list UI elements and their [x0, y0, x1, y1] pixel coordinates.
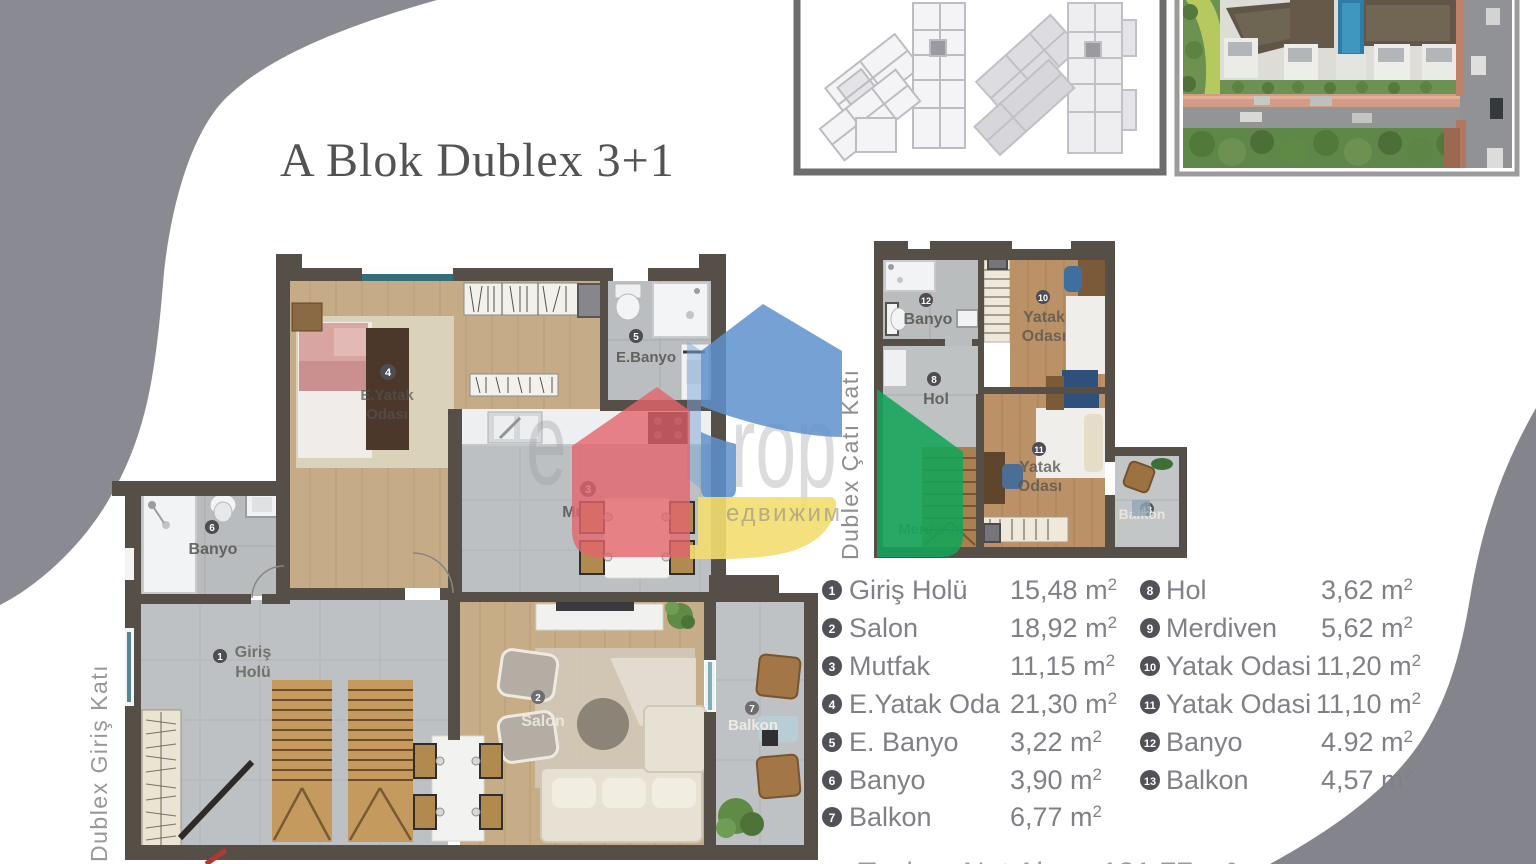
svg-text:4,57 m2: 4,57 m2: [1321, 765, 1413, 795]
svg-text:5: 5: [633, 332, 639, 343]
svg-text:4: 4: [829, 698, 836, 712]
svg-text:Dublex Giriş Katı: Dublex Giriş Katı: [86, 664, 112, 862]
svg-text:13: 13: [1144, 776, 1156, 788]
svg-text:2: 2: [829, 622, 836, 636]
svg-text:Yatak: Yatak: [1019, 459, 1061, 476]
svg-text:Balkon: Balkon: [849, 802, 932, 832]
svg-text:Banyo: Banyo: [189, 541, 238, 558]
svg-text:Holü: Holü: [235, 664, 271, 681]
svg-text:3: 3: [829, 660, 836, 674]
svg-text:Giriş: Giriş: [235, 644, 272, 661]
svg-text:7: 7: [829, 811, 836, 825]
svg-text:E.Yatak: E.Yatak: [360, 387, 414, 404]
svg-text:A Blok Dublex 3+1: A Blok Dublex 3+1: [280, 134, 675, 187]
svg-text:Odası: Odası: [1018, 478, 1062, 495]
svg-text:4.92 m2: 4.92 m2: [1321, 727, 1413, 757]
svg-text:10: 10: [1144, 662, 1156, 674]
svg-text:12: 12: [1144, 738, 1156, 750]
svg-text:3,22 m2: 3,22 m2: [1010, 727, 1102, 757]
svg-text:Balkon: Balkon: [728, 717, 778, 734]
svg-text:Salon: Salon: [521, 713, 565, 730]
svg-text:7: 7: [749, 704, 755, 715]
svg-text:2: 2: [535, 693, 541, 704]
svg-text:11,15 m2: 11,15 m2: [1010, 651, 1115, 681]
svg-text:10: 10: [1038, 293, 1048, 303]
svg-text:3,62 m2: 3,62 m2: [1321, 575, 1413, 605]
svg-text:8: 8: [1147, 584, 1154, 598]
svg-text:12: 12: [921, 296, 931, 306]
svg-text:15,48 m2: 15,48 m2: [1010, 575, 1117, 605]
svg-text:Odası: Odası: [1022, 328, 1066, 345]
svg-text:Mutfak: Mutfak: [849, 651, 931, 681]
svg-text:E.Yatak Oda: E.Yatak Oda: [849, 689, 1001, 719]
svg-text:8: 8: [931, 375, 937, 386]
svg-text:6: 6: [209, 523, 215, 534]
svg-text:5,62 m2: 5,62 m2: [1321, 613, 1413, 643]
svg-text:E. Banyo: E. Banyo: [849, 727, 959, 757]
svg-text:1: 1: [217, 652, 223, 663]
svg-text:9: 9: [1147, 622, 1154, 636]
svg-text:3,90 m2: 3,90 m2: [1010, 765, 1102, 795]
svg-text:11: 11: [1034, 445, 1044, 455]
svg-text:Balkon: Balkon: [1166, 765, 1249, 795]
svg-text:Merdiven: Merdiven: [1166, 613, 1277, 643]
svg-text:Banyo: Banyo: [1166, 727, 1243, 757]
svg-text:едвижим: едвижим: [726, 500, 842, 527]
svg-text:18,92 m2: 18,92 m2: [1010, 613, 1117, 643]
svg-text:Yatak Odasi: Yatak Odasi: [1166, 651, 1311, 681]
svg-text:Toplam Net Alan : 131,77 m²: Toplam Net Alan : 131,77 m²: [858, 857, 1237, 864]
svg-text:11,10 m2: 11,10 m2: [1316, 689, 1421, 719]
svg-text:Odası: Odası: [366, 406, 408, 423]
svg-text:4: 4: [385, 367, 392, 379]
svg-text:11,20 m2: 11,20 m2: [1316, 651, 1421, 681]
svg-text:1: 1: [829, 584, 836, 598]
svg-text:Yatak Odasi: Yatak Odasi: [1166, 689, 1311, 719]
svg-text:Banyo: Banyo: [849, 765, 926, 795]
svg-text:Giriş Holü: Giriş Holü: [849, 575, 968, 605]
svg-text:Banyo: Banyo: [904, 311, 953, 328]
svg-text:6,77 m2: 6,77 m2: [1010, 802, 1102, 832]
svg-text:Hol: Hol: [923, 391, 949, 408]
svg-text:E.Banyo: E.Banyo: [616, 349, 676, 366]
svg-text:11: 11: [1144, 700, 1156, 712]
svg-text:Salon: Salon: [849, 613, 918, 643]
svg-text:21,30 m2: 21,30 m2: [1010, 689, 1117, 719]
svg-text:Yatak: Yatak: [1023, 309, 1065, 326]
svg-text:Hol: Hol: [1166, 575, 1207, 605]
svg-text:6: 6: [829, 774, 836, 788]
svg-text:5: 5: [829, 736, 836, 750]
svg-text:e: e: [526, 377, 567, 509]
